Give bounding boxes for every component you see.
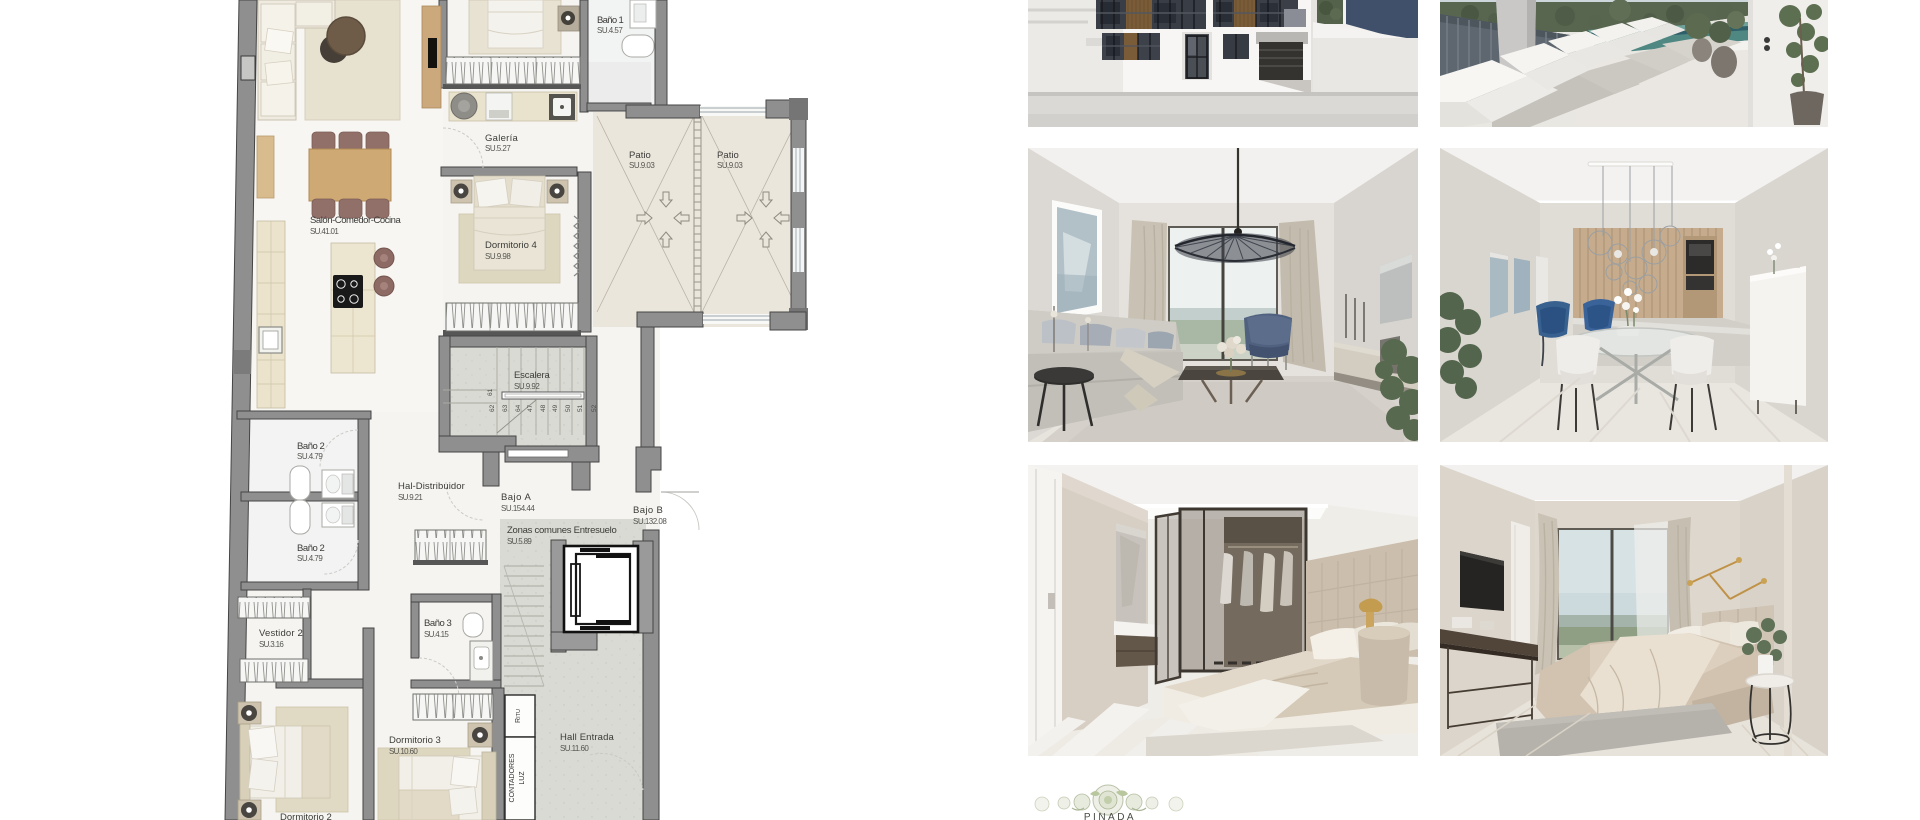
svg-text:52: 52 [591, 404, 598, 412]
svg-text:61: 61 [487, 388, 494, 396]
svg-text:49: 49 [552, 404, 559, 412]
svg-text:64: 64 [515, 404, 522, 412]
svg-text:51: 51 [577, 404, 584, 412]
svg-text:48: 48 [540, 404, 547, 412]
svg-text:SU.10.60: SU.10.60 [389, 747, 418, 756]
svg-text:63: 63 [502, 404, 509, 412]
svg-text:Hall Entrada: Hall Entrada [560, 732, 615, 743]
svg-text:62: 62 [489, 404, 496, 412]
svg-text:50: 50 [565, 404, 572, 412]
svg-text:Baño 1: Baño 1 [597, 15, 624, 26]
svg-text:Dormitorio 3: Dormitorio 3 [389, 735, 441, 746]
svg-text:SU.11.60: SU.11.60 [560, 744, 589, 753]
svg-text:SU.5.27: SU.5.27 [485, 144, 511, 153]
svg-text:Escalera: Escalera [514, 370, 551, 381]
svg-text:LUZ: LUZ [519, 771, 526, 785]
svg-text:Zonas comunes Entresuelo: Zonas comunes Entresuelo [507, 525, 617, 536]
svg-text:Baño 2: Baño 2 [297, 441, 325, 452]
svg-text:SU.4.79: SU.4.79 [297, 554, 323, 563]
svg-text:Dormitorio 2: Dormitorio 2 [280, 812, 332, 820]
svg-text:SU.5.89: SU.5.89 [507, 537, 532, 546]
svg-text:Patio: Patio [629, 150, 651, 161]
svg-text:SU.9.21: SU.9.21 [398, 493, 423, 502]
svg-text:SU.9.92: SU.9.92 [514, 382, 540, 391]
svg-text:Galería: Galería [485, 133, 519, 144]
svg-text:SU.4.79: SU.4.79 [297, 452, 323, 461]
svg-text:RITU: RITU [515, 709, 522, 723]
svg-text:SU.4.15: SU.4.15 [424, 630, 449, 639]
svg-text:Baño 3: Baño 3 [424, 618, 452, 629]
svg-text:SU.41.01: SU.41.01 [310, 227, 339, 236]
svg-text:Vestidor 2: Vestidor 2 [259, 628, 303, 639]
svg-text:CONTADORES: CONTADORES [509, 753, 516, 802]
svg-text:Bajo A: Bajo A [501, 492, 531, 503]
svg-text:SU.9.03: SU.9.03 [717, 161, 743, 170]
svg-text:PINADA: PINADA [1084, 812, 1136, 820]
svg-text:Dormitorio 4: Dormitorio 4 [485, 240, 537, 251]
svg-text:SU.154.44: SU.154.44 [501, 504, 535, 513]
svg-text:Hal-Distribuidor: Hal-Distribuidor [398, 481, 465, 492]
svg-text:SU.4.57: SU.4.57 [597, 26, 623, 35]
svg-text:Baño 2: Baño 2 [297, 543, 325, 554]
svg-text:Bajo B: Bajo B [633, 505, 663, 516]
svg-text:SU.3.16: SU.3.16 [259, 640, 284, 649]
svg-text:SU.9.03: SU.9.03 [629, 161, 655, 170]
svg-text:Patio: Patio [717, 150, 739, 161]
svg-text:Salón-Comedor-Cocina: Salón-Comedor-Cocina [310, 215, 402, 226]
svg-text:SU.132.08: SU.132.08 [633, 517, 667, 526]
svg-text:SU.9.98: SU.9.98 [485, 252, 511, 261]
svg-text:47: 47 [527, 404, 534, 412]
